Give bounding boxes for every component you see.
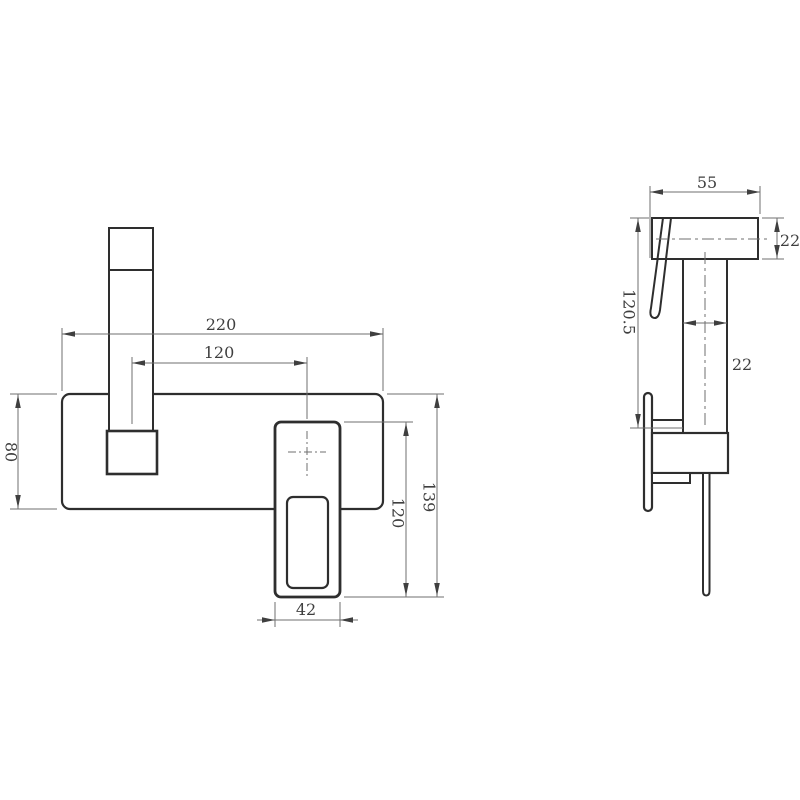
dim-label-handle-width: 42	[296, 600, 316, 619]
side-upper-mounting-tab-outline	[652, 420, 683, 433]
dim-label-overall-depth: 120.5	[620, 289, 639, 335]
dim-overall-height: 139	[387, 394, 444, 597]
arrowhead	[650, 189, 663, 195]
arrowhead	[15, 395, 21, 408]
dim-label-spout-section: 22	[780, 231, 800, 250]
arrowhead	[403, 583, 409, 596]
arrowhead	[403, 423, 409, 436]
arrowhead	[635, 219, 641, 232]
arrowhead	[635, 414, 641, 427]
arrowhead	[294, 360, 307, 366]
technical-drawing-page: 220 120 80 120	[0, 0, 800, 800]
arrowhead	[747, 189, 760, 195]
dim-handle-width: 42	[257, 600, 358, 627]
side-valve-body-outline	[652, 433, 728, 473]
dim-label-plate-width: 220	[206, 315, 237, 334]
dim-spout-section: 22	[762, 218, 800, 259]
dim-label-body-section: 22	[732, 355, 752, 374]
arrowhead	[683, 320, 696, 326]
front-spout-tube-outline	[109, 228, 153, 431]
dim-label-plate-height: 80	[2, 442, 21, 462]
dim-label-overall-height: 139	[420, 482, 439, 513]
dim-plate-height: 80	[2, 394, 58, 509]
dim-label-spout-reach: 55	[697, 173, 717, 192]
front-spout-base-outline	[107, 431, 157, 474]
side-lower-mounting-tab-outline	[652, 473, 690, 483]
arrowhead	[262, 617, 275, 623]
side-wall-plate-outline	[644, 393, 652, 511]
arrowhead	[434, 583, 440, 596]
arrowhead	[370, 331, 383, 337]
arrowhead	[434, 395, 440, 408]
side-view-dimensions: 55 22 120.5 22	[620, 173, 800, 428]
side-view	[644, 218, 770, 596]
dim-body-section: 22	[683, 320, 752, 374]
arrowhead	[714, 320, 727, 326]
arrowhead	[340, 617, 353, 623]
faucet-dimension-drawing: 220 120 80 120	[0, 0, 800, 800]
arrowhead	[15, 495, 21, 508]
dim-label-spout-to-handle: 120	[204, 343, 235, 362]
dim-label-handle-length: 120	[389, 498, 408, 529]
side-inlet-rod-outline	[703, 473, 710, 596]
arrowhead	[62, 331, 75, 337]
front-view	[62, 228, 383, 597]
